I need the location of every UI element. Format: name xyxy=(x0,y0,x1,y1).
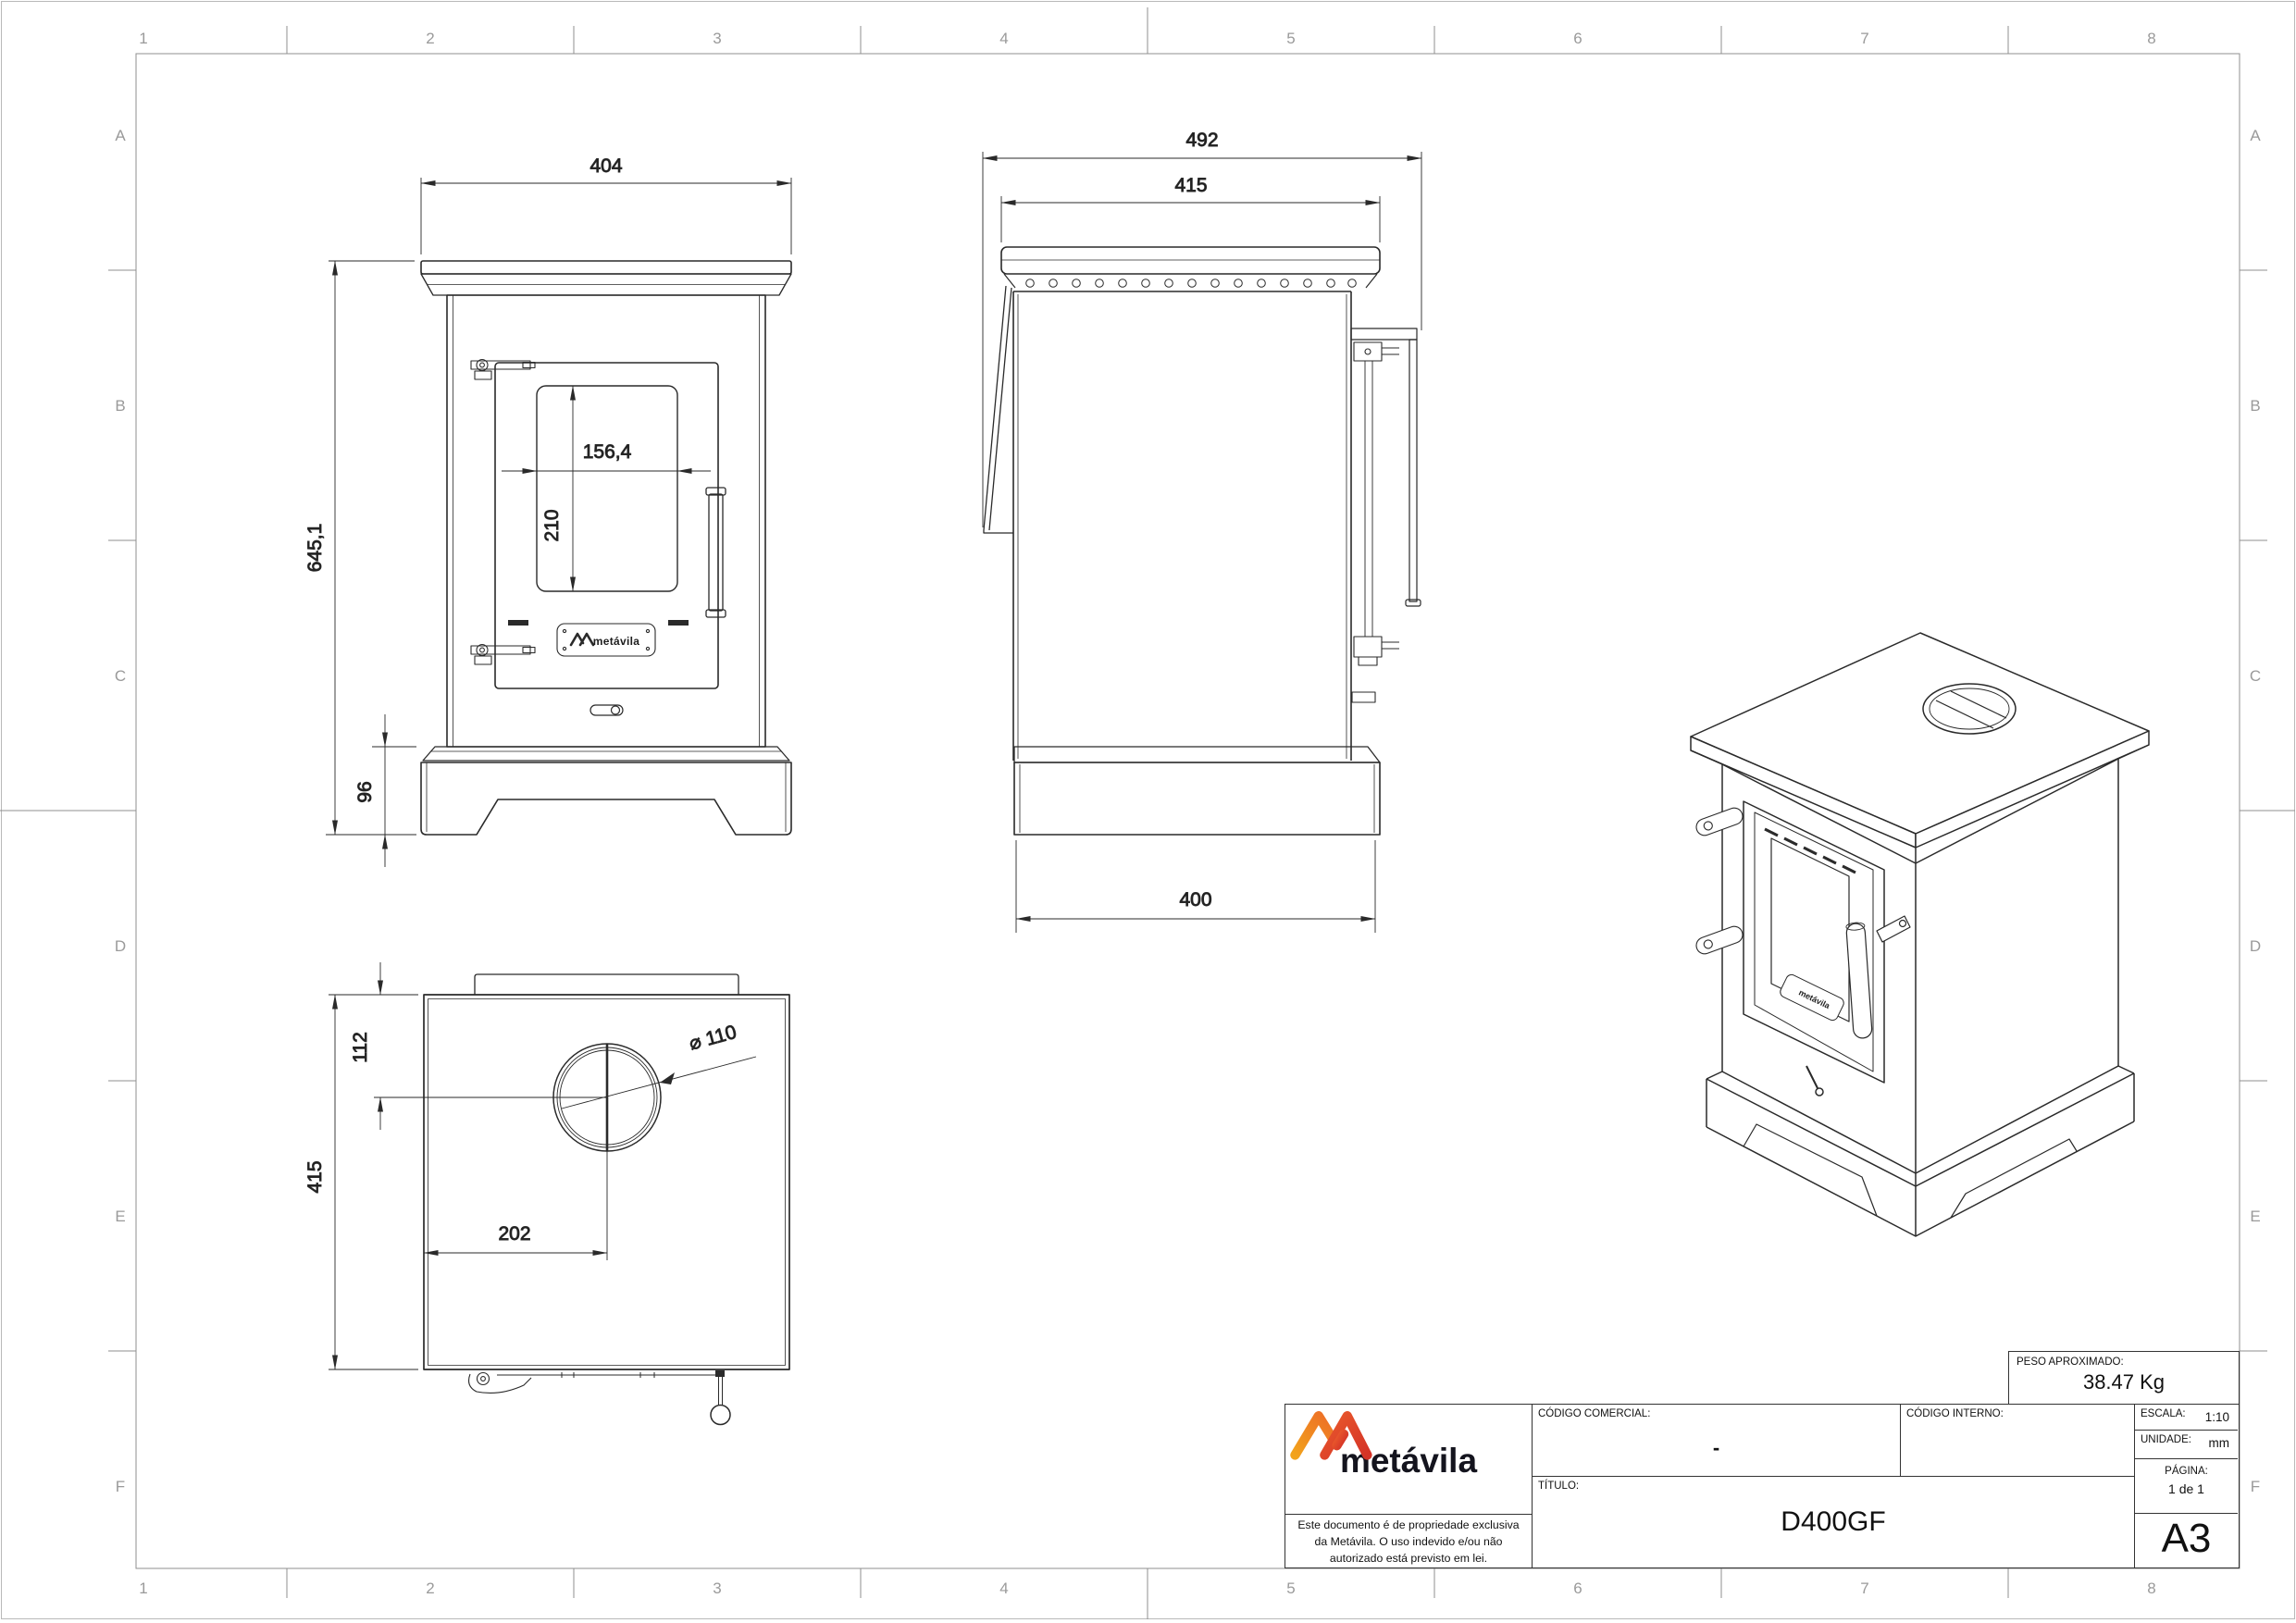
dim-side-top-depth: 415 xyxy=(1174,175,1207,196)
disclaimer-line: Este documento é de propriedade exclusiv… xyxy=(1285,1518,1532,1534)
dim-front-base-height: 96 xyxy=(354,781,376,802)
logo-cell: metávila Este documento é de propriedade… xyxy=(1285,1405,1533,1567)
zone-col-label: 2 xyxy=(426,30,434,47)
iso-door-vents xyxy=(1765,829,1855,873)
disclaimer: Este documento é de propriedade exclusiv… xyxy=(1285,1517,1532,1568)
unit-value: mm xyxy=(2209,1436,2230,1450)
dim-front-width: 404 xyxy=(590,155,622,177)
page-label: PÁGINA: xyxy=(2135,1459,2238,1477)
page-value: 1 de 1 xyxy=(2135,1477,2238,1496)
zone-col-label: 3 xyxy=(713,30,721,47)
door-handle xyxy=(706,488,726,617)
front-plate-text: metávila xyxy=(593,635,639,648)
zone-col-label: 3 xyxy=(713,1580,721,1597)
zone-col-label: 2 xyxy=(426,1580,434,1597)
iso-handle xyxy=(1846,916,1910,1039)
front-view xyxy=(421,261,791,835)
iso-ash-lever xyxy=(1806,1066,1818,1088)
unit-cell: UNIDADE: mm xyxy=(2135,1431,2238,1459)
disclaimer-line: da Metávila. O uso indevido e/ou não xyxy=(1285,1534,1532,1551)
drawing-canvas: 1 2 3 4 5 6 7 8 1 2 3 4 5 6 7 8 A B C D … xyxy=(0,0,2296,1623)
top-hinge-detail xyxy=(469,1373,531,1394)
info-column: ESCALA: 1:10 UNIDADE: mm PÁGINA: 1 de 1 … xyxy=(2134,1405,2238,1567)
dim-front-glass-width: 156,4 xyxy=(583,441,632,463)
dim-top-depth: 415 xyxy=(304,1160,326,1193)
zone-row-label: F xyxy=(116,1478,125,1495)
title-cell: TÍTULO: D400GF xyxy=(1533,1477,2134,1567)
back-hinge-hardware xyxy=(1352,342,1399,702)
commercial-code-value: - xyxy=(1533,1436,1900,1460)
drawing-title: D400GF xyxy=(1533,1506,2134,1538)
dim-side-base-depth: 400 xyxy=(1179,889,1211,911)
dim-top-flue-offset-x: 202 xyxy=(498,1223,530,1245)
weight-label: PESO APROXIMADO: xyxy=(2009,1352,2239,1368)
weight-value: 38.47 Kg xyxy=(2009,1370,2239,1394)
zone-row-label: B xyxy=(2250,397,2260,415)
zone-col-label: 7 xyxy=(1860,1580,1868,1597)
sheet-size: A3 xyxy=(2135,1514,2238,1564)
commercial-code-label: CÓDIGO COMERCIAL: xyxy=(1533,1405,1900,1419)
isometric-view: metávila xyxy=(1691,633,2149,1236)
dim-top-flue-diameter: ⌀ 110 xyxy=(687,1022,738,1055)
zone-col-label: 6 xyxy=(1573,1580,1582,1597)
zone-row-label: E xyxy=(115,1208,125,1225)
zone-row-label: A xyxy=(2250,127,2261,144)
zone-row-label: E xyxy=(2250,1208,2260,1225)
zone-row-label: C xyxy=(2250,667,2261,685)
internal-code-cell: CÓDIGO INTERNO: xyxy=(1901,1405,2134,1477)
commercial-code-cell: CÓDIGO COMERCIAL: - xyxy=(1533,1405,1901,1477)
iso-foot-cutout-right xyxy=(1951,1139,2077,1218)
dim-front-glass-height: 210 xyxy=(541,509,563,541)
title-label: TÍTULO: xyxy=(1533,1477,2134,1492)
zone-col-label: 4 xyxy=(999,30,1008,47)
side-view xyxy=(984,247,1421,835)
metavila-logo-icon xyxy=(1285,1405,1374,1462)
top-handle-knob xyxy=(711,1370,730,1425)
zone-row-label: D xyxy=(2250,937,2261,955)
zone-row-label: D xyxy=(115,937,126,955)
page-cell: PÁGINA: 1 de 1 xyxy=(2135,1459,2238,1514)
iso-brand-plate: metávila xyxy=(1779,973,1846,1022)
zone-row-label: B xyxy=(115,397,125,415)
zone-row-label: C xyxy=(115,667,126,685)
internal-code-label: CÓDIGO INTERNO: xyxy=(1901,1405,2134,1419)
zone-col-label: 1 xyxy=(139,1580,147,1597)
zone-col-label: 1 xyxy=(139,30,147,47)
dim-top-flue-offset-y: 112 xyxy=(350,1032,371,1062)
plate-logo-chevron-right xyxy=(580,634,593,645)
title-block: metávila Este documento é de propriedade… xyxy=(1285,1404,2240,1568)
drawing-sheet: 1 2 3 4 5 6 7 8 1 2 3 4 5 6 7 8 A B C D … xyxy=(0,0,2296,1623)
scale-cell: ESCALA: 1:10 xyxy=(2135,1405,2238,1431)
zone-col-label: 8 xyxy=(2147,1580,2155,1597)
zone-col-label: 7 xyxy=(1860,30,1868,47)
zone-col-label: 5 xyxy=(1286,30,1295,47)
scale-value: 1:10 xyxy=(2205,1410,2229,1424)
door-hinge-bottom xyxy=(471,645,535,665)
zone-col-label: 8 xyxy=(2147,30,2155,47)
top-view-dimensions: 112 415 202 ⌀ 110 xyxy=(304,962,756,1369)
sheet-size-cell: A3 xyxy=(2135,1514,2238,1567)
iso-foot-cutout-left xyxy=(1744,1124,1877,1216)
zone-col-label: 5 xyxy=(1286,1580,1295,1597)
side-handle xyxy=(1351,328,1421,606)
zone-col-label: 4 xyxy=(999,1580,1008,1597)
side-view-dimensions: 492 415 400 xyxy=(983,130,1421,933)
dim-front-total-height: 645,1 xyxy=(304,524,326,573)
vent-holes xyxy=(1026,279,1357,288)
disclaimer-line: autorizado está previsto em lei. xyxy=(1285,1551,1532,1567)
dim-side-total-depth: 492 xyxy=(1185,130,1218,151)
zone-col-label: 6 xyxy=(1573,30,1582,47)
door-latch-left xyxy=(508,620,528,626)
zone-row-label: A xyxy=(115,127,126,144)
weight-box: PESO APROXIMADO: 38.47 Kg xyxy=(2008,1351,2240,1406)
iso-hinge-tabs xyxy=(1694,806,1744,957)
air-slot xyxy=(590,705,623,715)
door-latch-right xyxy=(668,620,689,626)
zone-row-label: F xyxy=(2251,1478,2260,1495)
